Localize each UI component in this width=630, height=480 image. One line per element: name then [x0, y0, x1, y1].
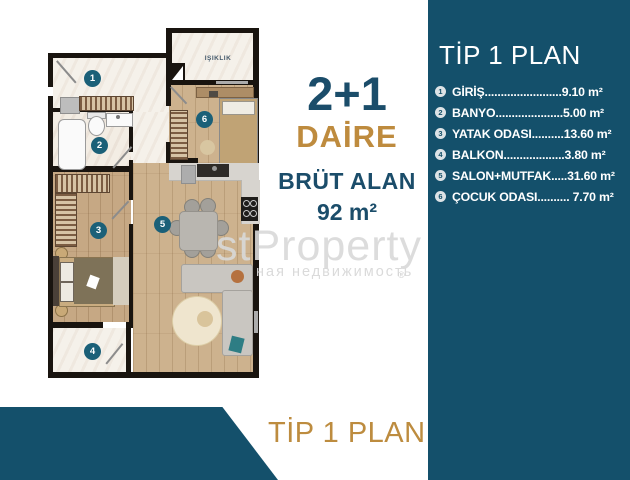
- panel-title: TİP 1 PLAN: [439, 40, 581, 71]
- room-name: YATAK ODASI: [452, 127, 532, 141]
- registered-mark-icon: ®: [398, 270, 405, 280]
- watermark-subtext: ная недвижимость: [256, 264, 413, 280]
- room-area: 5.00 m²: [563, 106, 604, 120]
- wall: [48, 372, 259, 378]
- dot-leader: ........................: [484, 85, 561, 99]
- wall: [48, 53, 172, 58]
- door-opening: [103, 322, 126, 328]
- list-item: 4 BALKON...................3.80 m²: [435, 144, 627, 165]
- apartment-type: DAİRE: [252, 119, 442, 155]
- dot-leader: ..........: [537, 190, 569, 204]
- child-dresser: [196, 87, 254, 98]
- list-item: 2 BANYO.....................5.00 m²: [435, 102, 627, 123]
- item-number-badge: 1: [435, 86, 446, 97]
- item-number-badge: 3: [435, 128, 446, 139]
- room-name: ÇOCUK ODASI: [452, 190, 537, 204]
- toilet: [88, 116, 105, 136]
- room-marker-5: 5: [154, 216, 171, 233]
- room-name: SALON+MUTFAK: [452, 169, 551, 183]
- dot-leader: ...................: [503, 148, 564, 162]
- fridge: [181, 165, 196, 184]
- wall: [126, 328, 131, 374]
- dot-leader: .....................: [495, 106, 563, 120]
- apartment-config: 2+1: [252, 66, 442, 121]
- round-rug-center: [197, 311, 213, 327]
- wall: [129, 224, 133, 328]
- room-area: 3.80 m²: [565, 148, 606, 162]
- list-item: 3 YATAK ODASI..........13.60 m²: [435, 123, 627, 144]
- wall: [129, 172, 133, 200]
- gross-area-value: 92 m²: [252, 199, 442, 226]
- child-rug: [200, 140, 215, 155]
- list-item: 5 SALON+MUTFAK.....31.60 m²: [435, 165, 627, 186]
- item-number-badge: 5: [435, 170, 446, 181]
- item-number-badge: 4: [435, 149, 446, 160]
- room-name: BALKON: [452, 148, 503, 162]
- room-list: 1 GİRİŞ........................9.10 m² 2…: [435, 81, 627, 207]
- faucet-icon: [212, 166, 217, 171]
- entry-cabinet: [60, 97, 80, 114]
- child-desk-item: [209, 91, 218, 97]
- wall: [48, 53, 53, 378]
- room-list-panel: TİP 1 PLAN 1 GİRİŞ......................…: [428, 0, 630, 480]
- bedroom-wardrobe: [55, 174, 110, 193]
- room-marker-2: 2: [91, 137, 108, 154]
- room-area: 7.70 m²: [569, 190, 613, 204]
- pillow: [60, 282, 74, 302]
- room-area: 13.60 m²: [564, 127, 612, 141]
- entry-wardrobe: [79, 96, 134, 111]
- list-item: 1 GİRİŞ........................9.10 m²: [435, 81, 627, 102]
- room-area: 9.10 m²: [562, 85, 603, 99]
- room-name: BANYO: [452, 106, 495, 120]
- room-name: GİRİŞ: [452, 85, 484, 99]
- room-marker-4: 4: [84, 343, 101, 360]
- pillow: [222, 101, 255, 115]
- flyer-canvas: IŞIKLIK 1 2 3 4 5 6 stProperty ная недви…: [0, 0, 630, 480]
- room-marker-6: 6: [196, 111, 213, 128]
- bathtub: [58, 119, 86, 170]
- room-marker-1: 1: [84, 70, 101, 87]
- child-wardrobe: [170, 110, 188, 160]
- pillow: [60, 262, 74, 282]
- bedside-rug: [113, 257, 129, 305]
- dot-leader: .....: [551, 169, 567, 183]
- sofa-pillow-orange: [231, 270, 244, 283]
- skylight-label: IŞIKLIK: [192, 55, 244, 62]
- window: [254, 311, 258, 333]
- room-marker-3: 3: [90, 222, 107, 239]
- door-opening: [48, 87, 53, 96]
- item-number-badge: 6: [435, 191, 446, 202]
- dot-leader: ..........: [532, 127, 564, 141]
- bedroom-wardrobe: [55, 193, 77, 247]
- list-item: 6 ÇOCUK ODASI.......... 7.70 m²: [435, 186, 627, 207]
- footer-plan-title: TİP 1 PLAN: [268, 417, 426, 450]
- window: [216, 81, 248, 84]
- item-number-badge: 2: [435, 107, 446, 118]
- gross-area-label: BRÜT ALAN: [252, 168, 442, 195]
- dining-table: [179, 211, 218, 251]
- faucet-icon: [116, 115, 120, 119]
- wall: [166, 28, 259, 33]
- shaft-symbol-icon: [170, 63, 185, 83]
- room-area: 31.60 m²: [567, 169, 615, 183]
